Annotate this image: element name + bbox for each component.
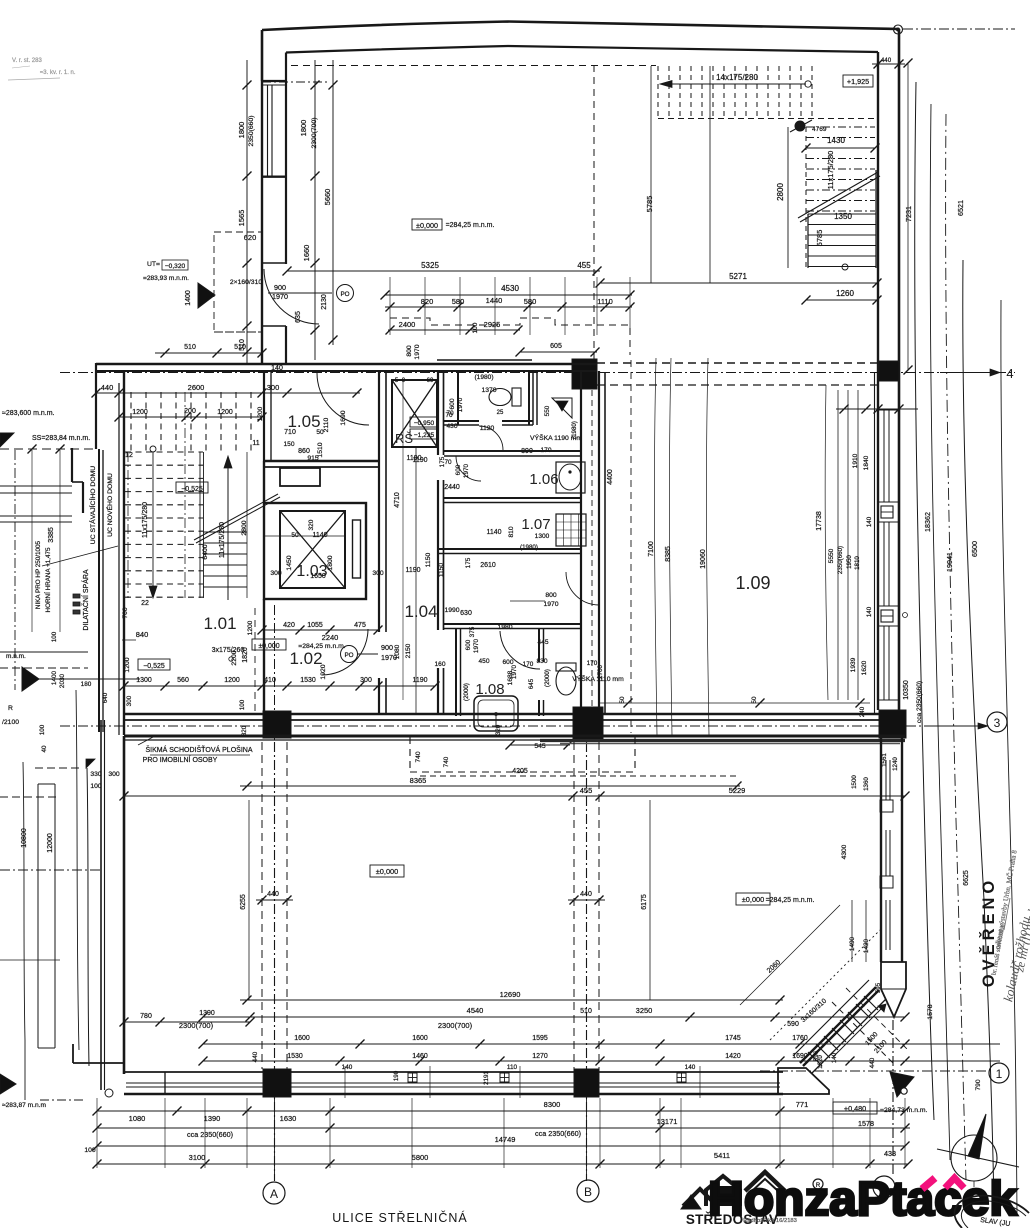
svg-text:2800: 2800: [776, 183, 785, 201]
svg-text:595: 595: [875, 982, 882, 993]
svg-text:596: 596: [813, 1050, 820, 1061]
svg-text:430: 430: [446, 423, 457, 430]
svg-text:14x175/280: 14x175/280: [716, 73, 758, 82]
svg-text:4530: 4530: [501, 284, 519, 293]
svg-text:810: 810: [508, 526, 515, 537]
svg-text:1.02: 1.02: [289, 649, 322, 668]
svg-text:2610: 2610: [480, 562, 496, 569]
svg-text:550: 550: [544, 405, 551, 416]
svg-text:4300: 4300: [841, 844, 848, 859]
svg-text:2240: 2240: [322, 633, 339, 642]
svg-text:(2000): (2000): [544, 669, 551, 687]
svg-text:1650: 1650: [310, 573, 326, 580]
svg-text:6625: 6625: [963, 870, 970, 886]
svg-text:12000: 12000: [47, 833, 54, 853]
svg-text:19941: 19941: [945, 552, 954, 572]
svg-text:6255: 6255: [240, 894, 247, 910]
svg-text:1420: 1420: [863, 938, 870, 953]
svg-text:200: 200: [184, 408, 196, 415]
svg-text:±0,000: ±0,000: [258, 643, 279, 650]
svg-text:1595: 1595: [532, 1035, 548, 1042]
svg-text:475: 475: [354, 622, 366, 629]
svg-text:(1980): (1980): [474, 374, 493, 381]
svg-text:1510: 1510: [317, 442, 324, 457]
svg-text:2300(700): 2300(700): [438, 1021, 473, 1030]
svg-text:4710: 4710: [394, 492, 401, 508]
svg-text:1080: 1080: [129, 1114, 146, 1123]
svg-text:B: B: [584, 1185, 592, 1199]
svg-text:60: 60: [427, 378, 434, 384]
svg-text:545: 545: [534, 743, 546, 750]
svg-text:5660: 5660: [323, 189, 332, 206]
svg-text:40: 40: [41, 745, 48, 752]
svg-text:2191: 2191: [483, 1071, 490, 1085]
svg-text:1800: 1800: [299, 120, 308, 137]
svg-text:10800: 10800: [21, 828, 28, 848]
svg-text:300: 300: [360, 677, 372, 684]
svg-text:5785: 5785: [815, 230, 824, 247]
svg-text:510: 510: [580, 1008, 592, 1015]
svg-text:7231: 7231: [904, 206, 913, 222]
svg-text:m.n.m.: m.n.m.: [6, 653, 26, 660]
svg-text:1300: 1300: [535, 533, 550, 540]
svg-text:5229: 5229: [729, 786, 746, 795]
svg-text:1370: 1370: [481, 387, 496, 394]
svg-text:DILATAČNÍ SPÁRA: DILATAČNÍ SPÁRA: [81, 569, 90, 631]
svg-text:1190: 1190: [406, 455, 421, 462]
svg-text:1970: 1970: [414, 344, 421, 359]
svg-text:605: 605: [550, 343, 562, 350]
svg-text:5411: 5411: [714, 1151, 730, 1160]
svg-text:1450: 1450: [286, 555, 293, 570]
svg-text:PRO IMOBILNÍ OSOBY: PRO IMOBILNÍ OSOBY: [143, 755, 218, 764]
svg-text:2130: 2130: [321, 294, 328, 310]
svg-text:12690: 12690: [500, 990, 521, 999]
svg-text:2300(700): 2300(700): [311, 118, 318, 149]
svg-text:2800: 2800: [241, 520, 248, 535]
svg-text:790: 790: [975, 1079, 982, 1090]
svg-text:6175: 6175: [641, 894, 648, 910]
svg-text:R: R: [8, 705, 13, 712]
svg-text:560: 560: [177, 677, 189, 684]
svg-text:1270: 1270: [532, 1053, 548, 1060]
svg-text:1200: 1200: [132, 409, 148, 416]
svg-text:7100: 7100: [648, 541, 655, 557]
svg-text:1810: 1810: [854, 556, 861, 570]
svg-text:700: 700: [122, 607, 129, 618]
svg-text:−1,225: −1,225: [414, 432, 435, 439]
svg-text:5325: 5325: [421, 261, 439, 270]
svg-text:8385: 8385: [665, 546, 672, 562]
svg-text:1240: 1240: [892, 757, 899, 771]
svg-text:1.05: 1.05: [287, 412, 320, 431]
svg-text:330: 330: [90, 771, 102, 778]
svg-text:19060: 19060: [700, 549, 707, 569]
svg-text:1620: 1620: [861, 660, 868, 675]
svg-text:2600: 2600: [188, 383, 205, 392]
svg-text:1390: 1390: [199, 1010, 215, 1017]
svg-text:100: 100: [84, 1147, 96, 1154]
svg-text:630: 630: [460, 610, 472, 617]
svg-text:22: 22: [141, 600, 149, 607]
svg-text:11x175/280: 11x175/280: [826, 151, 835, 190]
svg-text:620: 620: [244, 233, 257, 242]
svg-text:640: 640: [102, 692, 109, 703]
svg-text:440: 440: [252, 1051, 259, 1062]
svg-text:1950: 1950: [846, 555, 853, 569]
svg-text:1.06: 1.06: [529, 471, 558, 488]
svg-text:100: 100: [51, 631, 58, 642]
svg-text:1110: 1110: [597, 297, 613, 306]
svg-text:2200: 2200: [231, 650, 238, 665]
svg-text:1200: 1200: [124, 657, 131, 672]
svg-text:1820: 1820: [242, 647, 249, 663]
svg-text:2350(660): 2350(660): [837, 546, 844, 574]
svg-text:11x175/280: 11x175/280: [142, 502, 149, 538]
svg-text:1561: 1561: [881, 753, 888, 767]
svg-text:1: 1: [996, 1067, 1003, 1081]
svg-text:170: 170: [523, 661, 534, 668]
svg-text:1055: 1055: [307, 622, 323, 629]
svg-text:140: 140: [342, 1064, 353, 1071]
svg-text:≈283,87 m.n.m: ≈283,87 m.n.m: [2, 1102, 46, 1109]
svg-text:440: 440: [869, 1057, 876, 1068]
svg-text:240: 240: [859, 706, 866, 717]
svg-text:PO: PO: [340, 291, 349, 298]
svg-text:+1,925: +1,925: [847, 77, 869, 86]
svg-text:5271: 5271: [729, 272, 747, 281]
svg-text:cca 2350(660): cca 2350(660): [535, 1129, 581, 1138]
svg-text:5800: 5800: [412, 1153, 429, 1162]
svg-text:140: 140: [831, 1052, 838, 1063]
svg-text:3100: 3100: [189, 1153, 206, 1162]
svg-text:1200: 1200: [247, 620, 254, 635]
svg-text:1690: 1690: [792, 1053, 808, 1060]
svg-text:1.04: 1.04: [404, 602, 437, 621]
svg-text:1350: 1350: [834, 212, 852, 221]
svg-text:70: 70: [445, 412, 453, 419]
svg-text:11x175/280: 11x175/280: [219, 522, 226, 558]
svg-text:1140: 1140: [486, 529, 501, 536]
svg-text:PO: PO: [344, 652, 353, 659]
svg-text:12: 12: [125, 452, 133, 459]
svg-text:320: 320: [308, 519, 315, 530]
svg-text:cca 2350(660): cca 2350(660): [916, 681, 923, 723]
svg-text:1920: 1920: [320, 664, 327, 679]
svg-text:160: 160: [434, 661, 445, 668]
svg-text:320: 320: [495, 724, 502, 735]
svg-text:(2000): (2000): [463, 683, 470, 701]
svg-text:1688: 1688: [507, 670, 514, 685]
svg-text:ŠIKMÁ SCHODIŠŤOVÁ PLOŠINA: ŠIKMÁ SCHODIŠŤOVÁ PLOŠINA: [146, 745, 253, 754]
svg-text:50: 50: [291, 532, 299, 539]
svg-text:2×160/310: 2×160/310: [230, 279, 263, 286]
svg-text:−0,525: −0,525: [143, 663, 165, 670]
svg-text:1420: 1420: [725, 1053, 741, 1060]
svg-text:5785: 5785: [645, 196, 654, 213]
svg-text:1190: 1190: [405, 567, 420, 574]
svg-text:4205: 4205: [512, 768, 528, 775]
svg-text:4: 4: [1006, 366, 1013, 381]
svg-text:1080: 1080: [394, 644, 401, 659]
svg-text:1490: 1490: [849, 936, 856, 951]
svg-text:4769: 4769: [812, 126, 827, 133]
svg-text:70: 70: [444, 459, 452, 466]
svg-text:1400: 1400: [51, 670, 58, 685]
svg-text:820: 820: [421, 297, 434, 306]
svg-text:1.09: 1.09: [735, 573, 770, 593]
svg-text:3: 3: [994, 716, 1001, 730]
svg-text:600: 600: [449, 398, 456, 409]
svg-text:2150: 2150: [405, 643, 412, 658]
svg-text:1939: 1939: [850, 657, 857, 672]
svg-text:860: 860: [298, 448, 310, 455]
svg-text:±0,000: ±0,000: [376, 867, 399, 876]
svg-text:300: 300: [270, 570, 282, 577]
svg-text:ULICE STŘELNIČNÁ: ULICE STŘELNIČNÁ: [332, 1210, 467, 1225]
svg-text:A: A: [270, 1187, 278, 1201]
svg-text:≈283,600 m.n.m.: ≈283,600 m.n.m.: [2, 410, 55, 417]
svg-text:1150: 1150: [425, 552, 432, 567]
svg-text:900: 900: [274, 283, 286, 292]
svg-text:1970: 1970: [457, 397, 464, 412]
svg-text:1600: 1600: [412, 1035, 428, 1042]
svg-text:175: 175: [465, 557, 472, 568]
svg-text:2440: 2440: [444, 484, 460, 491]
svg-text:590: 590: [787, 1021, 799, 1028]
svg-text:UC NOVÉHO DOMU: UC NOVÉHO DOMU: [105, 473, 114, 537]
svg-text:1690: 1690: [340, 410, 347, 425]
svg-text:=283,93 m.n.m.: =283,93 m.n.m.: [143, 275, 189, 282]
svg-text:140: 140: [866, 516, 873, 527]
svg-text:740: 740: [443, 756, 450, 767]
svg-text:771: 771: [796, 1100, 809, 1109]
svg-text:440: 440: [881, 57, 892, 64]
svg-text:6500: 6500: [970, 541, 979, 557]
svg-text:UC STÁVAJÍCÍHO DOMU: UC STÁVAJÍCÍHO DOMU: [88, 466, 97, 545]
svg-text:1970: 1970: [463, 463, 470, 478]
svg-text:800: 800: [406, 345, 413, 357]
svg-text:±0,000: ±0,000: [742, 895, 765, 904]
svg-text:=284,25 m.n.m.: =284,25 m.n.m.: [446, 222, 495, 229]
svg-text:1390: 1390: [204, 1114, 221, 1123]
svg-text:450: 450: [478, 658, 489, 665]
svg-text:1800: 1800: [327, 555, 334, 570]
svg-text:1150: 1150: [438, 563, 445, 578]
svg-text:=284,25 m.n.m.: =284,25 m.n.m.: [766, 897, 815, 904]
svg-text:1.01: 1.01: [203, 614, 236, 633]
svg-text:455: 455: [580, 786, 593, 795]
svg-text:1660: 1660: [302, 245, 311, 262]
svg-text:cca 2350(660): cca 2350(660): [187, 1130, 233, 1139]
svg-text:1360: 1360: [863, 777, 870, 791]
svg-text:140: 140: [685, 1064, 696, 1071]
svg-text:18362: 18362: [923, 512, 932, 532]
svg-text:HonzaPtacek: HonzaPtacek: [708, 1172, 1018, 1226]
svg-text:50: 50: [619, 696, 626, 703]
svg-text:1760: 1760: [792, 1035, 808, 1042]
svg-text:1400: 1400: [185, 290, 192, 306]
svg-text:190: 190: [393, 1070, 400, 1081]
svg-text:150: 150: [283, 441, 294, 448]
svg-text:1.07: 1.07: [521, 516, 550, 533]
svg-text:1910: 1910: [852, 453, 859, 468]
svg-text:1970: 1970: [543, 601, 558, 608]
svg-text:300: 300: [126, 695, 133, 706]
svg-text:4540: 4540: [467, 1006, 484, 1015]
svg-text:600: 600: [455, 464, 462, 475]
svg-text:440: 440: [101, 383, 114, 392]
svg-text:1440: 1440: [486, 296, 503, 305]
svg-text:+0,480: +0,480: [844, 1104, 866, 1113]
svg-text:180: 180: [81, 681, 92, 688]
svg-text:840: 840: [136, 630, 149, 639]
svg-text:3250: 3250: [636, 1006, 653, 1015]
svg-text:300: 300: [108, 771, 120, 778]
svg-text:1120: 1120: [480, 425, 495, 432]
svg-text:635: 635: [295, 311, 302, 323]
svg-text:1530: 1530: [287, 1053, 303, 1060]
svg-text:1530: 1530: [300, 677, 316, 684]
svg-text:1460: 1460: [412, 1053, 428, 1060]
svg-text:11: 11: [252, 440, 259, 447]
svg-text:100: 100: [39, 724, 46, 735]
svg-text:740: 740: [415, 751, 422, 762]
svg-text:1190: 1190: [412, 677, 427, 684]
svg-text:8300: 8300: [544, 1100, 561, 1109]
svg-text:6400: 6400: [202, 544, 209, 559]
svg-text:455: 455: [577, 261, 591, 270]
svg-text:600: 600: [465, 639, 472, 650]
svg-text:780: 780: [140, 1013, 152, 1020]
svg-text:2110: 2110: [323, 417, 330, 432]
svg-text:14749: 14749: [495, 1135, 516, 1144]
svg-text:440: 440: [580, 891, 592, 898]
svg-text:2350(660): 2350(660): [248, 116, 255, 147]
svg-text:HORNÍ HRANA +1,475: HORNÍ HRANA +1,475: [43, 547, 52, 612]
svg-text:−0,320: −0,320: [165, 263, 186, 270]
svg-text:140: 140: [866, 606, 873, 617]
svg-text:5550: 5550: [828, 548, 835, 563]
svg-text:2400: 2400: [399, 320, 416, 329]
svg-text:SS=283,84 m.n.m.: SS=283,84 m.n.m.: [32, 435, 90, 442]
svg-text:645: 645: [528, 678, 535, 689]
svg-text:1565: 1565: [237, 210, 246, 227]
svg-text:1970: 1970: [473, 638, 480, 653]
svg-text:1260: 1260: [836, 289, 854, 298]
svg-text:1990: 1990: [444, 607, 459, 614]
svg-text:−0,525: −0,525: [181, 486, 203, 493]
svg-text:3385: 3385: [48, 527, 55, 543]
svg-text:4400: 4400: [607, 469, 614, 485]
svg-text:±0,000: ±0,000: [416, 221, 438, 230]
svg-text:≈3. kv. r. 1. n.: ≈3. kv. r. 1. n.: [40, 70, 76, 76]
svg-text:110: 110: [507, 1064, 518, 1071]
svg-text:1200: 1200: [224, 677, 240, 684]
svg-text:580: 580: [452, 297, 465, 306]
svg-text:510: 510: [234, 344, 246, 351]
svg-text:8365: 8365: [410, 776, 427, 785]
svg-text:6521: 6521: [956, 200, 965, 216]
svg-text:510: 510: [184, 344, 196, 351]
svg-text:25: 25: [497, 410, 504, 416]
svg-text:1578: 1578: [858, 1119, 874, 1128]
svg-text:10350: 10350: [903, 680, 910, 700]
svg-text:1800: 1800: [237, 122, 246, 139]
svg-text:1980: 1980: [497, 624, 512, 631]
svg-text:440: 440: [267, 891, 279, 898]
svg-text:UT=: UT=: [147, 261, 160, 268]
svg-text:/2100: /2100: [2, 719, 19, 726]
svg-text:NIKA PRO HP 250/1005: NIKA PRO HP 250/1005: [35, 540, 42, 609]
svg-text:100: 100: [472, 322, 479, 333]
svg-text:1840: 1840: [863, 455, 870, 470]
svg-text:RŠ: RŠ: [395, 431, 413, 446]
svg-text:1600: 1600: [294, 1035, 310, 1042]
svg-text:1200: 1200: [217, 409, 233, 416]
svg-text:438: 438: [884, 1149, 896, 1158]
svg-text:100: 100: [90, 783, 102, 790]
svg-text:3x175/260: 3x175/260: [212, 647, 245, 654]
svg-text:1500: 1500: [851, 775, 858, 789]
svg-text:1430: 1430: [827, 136, 845, 145]
svg-text:1745: 1745: [725, 1035, 741, 1042]
svg-text:100: 100: [239, 699, 246, 710]
svg-text:V. r. st. 283: V. r. st. 283: [12, 58, 42, 64]
svg-text:1140: 1140: [312, 532, 327, 539]
svg-text:410: 410: [264, 677, 276, 684]
svg-text:5−0: 5−0: [395, 378, 406, 384]
svg-text:900: 900: [381, 643, 393, 652]
svg-text:140: 140: [271, 365, 283, 372]
svg-text:50: 50: [751, 696, 758, 703]
svg-text:VÝŠKA 1190 mm: VÝŠKA 1190 mm: [530, 433, 582, 442]
svg-text:300: 300: [267, 383, 280, 392]
svg-text:17738: 17738: [816, 511, 823, 531]
svg-text:1300: 1300: [136, 677, 152, 684]
svg-text:1630: 1630: [280, 1114, 297, 1123]
svg-text:2030: 2030: [59, 673, 66, 688]
svg-text:−0,950: −0,950: [414, 420, 435, 427]
svg-text:420: 420: [283, 622, 295, 629]
svg-text:800: 800: [545, 592, 557, 599]
